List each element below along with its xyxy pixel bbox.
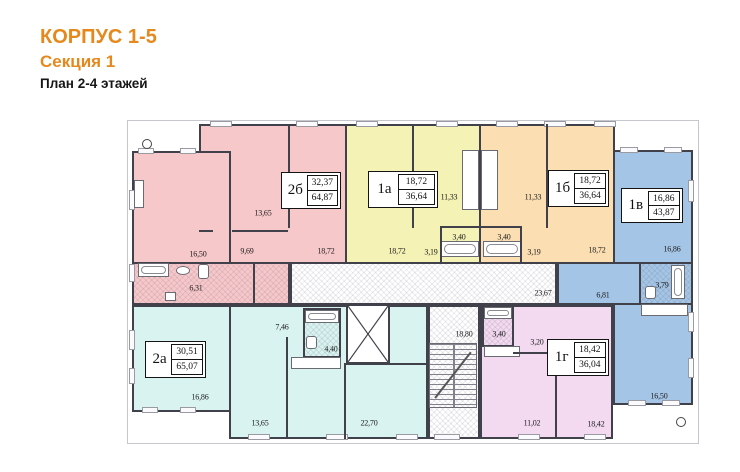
bathtub-inner bbox=[486, 244, 518, 254]
wall bbox=[232, 230, 288, 232]
axis-marker-circle bbox=[676, 417, 686, 427]
kitchen-counter bbox=[462, 150, 479, 210]
apartment-info-box-1g: 1г 18,42 36,04 bbox=[547, 339, 609, 376]
window bbox=[518, 434, 540, 440]
apartment-info-box-2b: 2б 32,37 64,87 bbox=[281, 172, 341, 209]
room-area-label: 3,79 bbox=[655, 281, 668, 290]
kitchen-counter bbox=[291, 357, 341, 369]
bathtub-inner bbox=[444, 244, 476, 254]
room-area-label: 3,19 bbox=[527, 248, 540, 257]
toilet bbox=[645, 286, 656, 299]
apartment-type: 2а bbox=[148, 344, 171, 375]
room-area-label: 6,31 bbox=[189, 284, 202, 293]
window bbox=[129, 330, 135, 350]
bathtub-inner bbox=[141, 266, 166, 274]
room-area-label: 9,69 bbox=[240, 247, 253, 256]
room-area-label: 3,40 bbox=[492, 330, 505, 339]
window bbox=[180, 407, 196, 413]
room-area-label: 11,33 bbox=[441, 193, 458, 202]
window bbox=[248, 434, 270, 440]
bathtub bbox=[671, 265, 685, 299]
wall bbox=[440, 226, 481, 228]
apartment-info-box-1a: 1а 18,72 36,64 bbox=[368, 171, 438, 208]
wall bbox=[479, 226, 521, 228]
apartment-type: 2б bbox=[284, 175, 307, 206]
wall bbox=[520, 226, 522, 264]
wall bbox=[253, 262, 255, 303]
room-area-label: 3,40 bbox=[497, 233, 510, 242]
toilet bbox=[198, 264, 209, 279]
window bbox=[296, 121, 318, 127]
total-area: 36,64 bbox=[575, 189, 605, 203]
apartment-type: 1в bbox=[624, 191, 648, 220]
building-title: КОРПУС 1-5 bbox=[40, 24, 157, 51]
cabinet bbox=[134, 180, 144, 208]
wall bbox=[440, 226, 442, 264]
toilet bbox=[306, 336, 317, 349]
living-area: 18,72 bbox=[399, 175, 434, 190]
bathtub-inner bbox=[308, 313, 336, 320]
corridor-region bbox=[290, 262, 557, 305]
window bbox=[664, 147, 682, 153]
room-area-label: 22,70 bbox=[360, 419, 377, 428]
room-area-label: 13,65 bbox=[251, 419, 268, 428]
apartment-1v-region-bottom bbox=[613, 303, 693, 405]
window bbox=[180, 148, 196, 154]
window bbox=[628, 400, 646, 406]
room-area-label: 13,65 bbox=[254, 209, 271, 218]
room-area-label: 4,40 bbox=[324, 345, 337, 354]
bathtub bbox=[483, 241, 521, 257]
room-area-label: 11,02 bbox=[524, 419, 541, 428]
room-area-label: 16,86 bbox=[663, 245, 680, 254]
section-title: Секция 1 bbox=[40, 51, 157, 74]
bathtub bbox=[441, 241, 479, 257]
elevator-x-mark bbox=[348, 306, 388, 362]
room-area-label: 16,50 bbox=[650, 392, 667, 401]
corridor-area-label: 23,67 bbox=[534, 289, 551, 298]
apartment-info-box-1b: 1б 18,72 36,64 bbox=[548, 170, 609, 207]
apartment-type: 1а bbox=[371, 174, 398, 205]
room-area-label: 18,72 bbox=[388, 247, 405, 256]
wall bbox=[199, 230, 213, 232]
wall bbox=[344, 363, 429, 365]
total-area: 65,07 bbox=[172, 360, 202, 374]
living-area: 18,42 bbox=[575, 343, 605, 358]
room-area-label: 3,19 bbox=[424, 248, 437, 257]
bathtub bbox=[305, 310, 339, 323]
kitchen-counter bbox=[481, 150, 498, 210]
apartment-type: 1г bbox=[550, 342, 574, 373]
apartment-info-box-2a: 2а 30,51 65,07 bbox=[145, 341, 206, 378]
staircase bbox=[429, 343, 477, 408]
total-area: 36,04 bbox=[575, 358, 605, 372]
bathtub-inner bbox=[674, 268, 682, 296]
window bbox=[434, 434, 460, 440]
floors-subtitle: План 2-4 этажей bbox=[40, 74, 157, 94]
apartment-info-box-1v: 1в 16,86 43,87 bbox=[621, 188, 683, 223]
room-area-label: 18,42 bbox=[587, 420, 604, 429]
room-area-label: 3,20 bbox=[530, 338, 543, 347]
room-area-label: 18,72 bbox=[588, 246, 605, 255]
hall-area-label: 18,80 bbox=[455, 330, 472, 339]
elevator-shaft bbox=[346, 304, 390, 364]
window bbox=[584, 434, 606, 440]
floor-plan-page: КОРПУС 1-5 Секция 1 План 2-4 этажей bbox=[0, 0, 740, 472]
window bbox=[496, 121, 518, 127]
window bbox=[594, 121, 616, 127]
window bbox=[356, 121, 378, 127]
room-area-label: 7,46 bbox=[275, 323, 288, 332]
room-area-label: 3,40 bbox=[452, 233, 465, 242]
window bbox=[396, 434, 418, 440]
washing-machine bbox=[165, 292, 176, 301]
window bbox=[210, 121, 232, 127]
bathtub-inner bbox=[487, 310, 509, 316]
apartment-type: 1б bbox=[551, 173, 574, 204]
total-area: 64,87 bbox=[308, 191, 337, 205]
living-area: 18,72 bbox=[575, 174, 605, 189]
bathtub bbox=[138, 263, 169, 277]
total-area: 43,87 bbox=[649, 206, 679, 219]
kitchen-counter bbox=[641, 304, 688, 316]
window bbox=[436, 121, 458, 127]
wall bbox=[344, 363, 346, 439]
window bbox=[620, 147, 638, 153]
window bbox=[662, 400, 680, 406]
window bbox=[688, 312, 694, 332]
window bbox=[129, 368, 135, 384]
axis-marker-circle bbox=[142, 139, 152, 149]
living-area: 32,37 bbox=[308, 176, 337, 191]
room-area-label: 16,50 bbox=[189, 250, 206, 259]
room-area-label: 18,72 bbox=[317, 247, 334, 256]
window bbox=[129, 264, 135, 282]
room-area-label: 6,81 bbox=[596, 291, 609, 300]
room-area-label: 16,86 bbox=[191, 393, 208, 402]
window bbox=[688, 358, 694, 378]
room-area-label: 11,33 bbox=[525, 193, 542, 202]
bathtub bbox=[484, 307, 512, 319]
plan-header: КОРПУС 1-5 Секция 1 План 2-4 этажей bbox=[40, 24, 157, 94]
apartment-2b-region-left bbox=[132, 151, 231, 264]
wall bbox=[286, 337, 288, 439]
window bbox=[688, 180, 694, 202]
living-area: 16,86 bbox=[649, 192, 679, 206]
sink bbox=[176, 266, 190, 275]
total-area: 36,64 bbox=[399, 190, 434, 204]
living-area: 30,51 bbox=[172, 345, 202, 360]
window bbox=[142, 407, 158, 413]
